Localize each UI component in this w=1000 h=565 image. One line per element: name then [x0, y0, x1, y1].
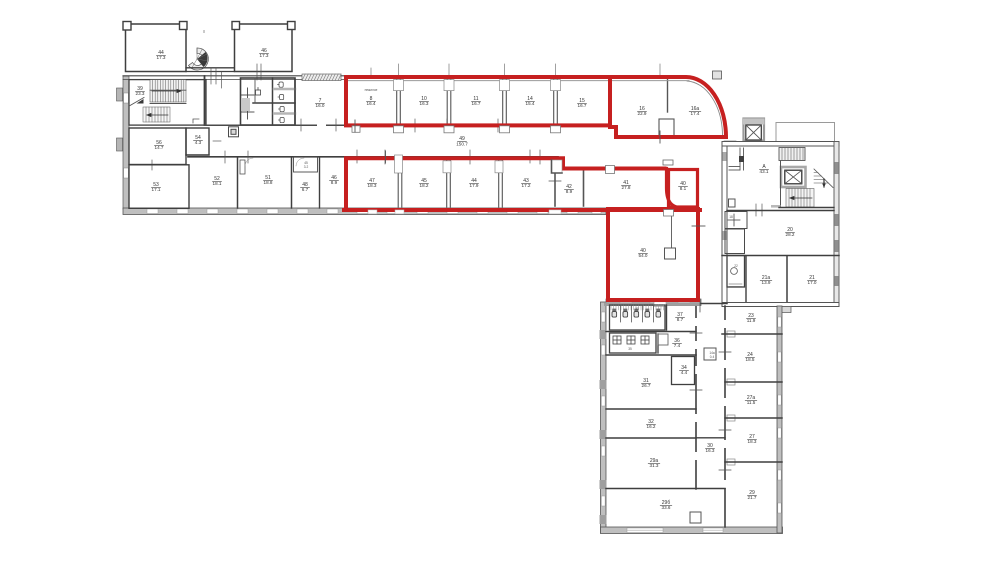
svg-text:16.2: 16.2	[647, 424, 656, 429]
svg-text:3.2: 3.2	[304, 165, 309, 169]
svg-text:17.0: 17.0	[808, 280, 817, 285]
svg-text:17.2: 17.2	[522, 183, 531, 188]
svg-text:43.1: 43.1	[760, 169, 769, 174]
svg-text:нежилое: нежилое	[365, 88, 378, 92]
svg-text:16.4: 16.4	[367, 101, 376, 106]
svg-text:17.3: 17.3	[157, 55, 166, 60]
svg-text:21.7: 21.7	[748, 495, 757, 500]
svg-text:23.3: 23.3	[136, 91, 145, 96]
svg-text:18.3: 18.3	[748, 439, 757, 444]
svg-text:8.9: 8.9	[566, 189, 573, 194]
svg-text:18.1: 18.1	[213, 181, 222, 186]
svg-text:14.7: 14.7	[155, 145, 164, 150]
svg-text:8.1: 8.1	[680, 186, 687, 191]
svg-text:18.2: 18.2	[420, 183, 429, 188]
svg-text:54.0: 54.0	[639, 253, 648, 258]
svg-text:22.9: 22.9	[638, 111, 647, 116]
svg-text:11.9: 11.9	[747, 318, 756, 323]
svg-text:16.7: 16.7	[578, 103, 587, 108]
svg-text:16.3: 16.3	[420, 101, 429, 106]
svg-text:31.3: 31.3	[650, 463, 659, 468]
svg-text:0.4: 0.4	[710, 355, 715, 359]
svg-text:4.3: 4.3	[195, 140, 202, 145]
svg-text:18: 18	[729, 215, 733, 219]
svg-text:4.4: 4.4	[681, 370, 688, 375]
svg-text:16.0: 16.0	[316, 103, 325, 108]
svg-text:11.5: 11.5	[747, 400, 756, 405]
svg-text:16.7: 16.7	[472, 101, 481, 106]
svg-text:17.3: 17.3	[260, 53, 269, 58]
svg-text:27.8: 27.8	[622, 185, 631, 190]
svg-text:7.4: 7.4	[674, 343, 681, 348]
svg-text:13.9: 13.9	[762, 280, 771, 285]
svg-text:8.7: 8.7	[677, 317, 684, 322]
svg-text:35: 35	[628, 347, 632, 351]
svg-text:18.8: 18.8	[264, 180, 273, 185]
svg-text:150.7: 150.7	[456, 142, 468, 147]
svg-text:18.3: 18.3	[368, 183, 377, 188]
svg-text:15.4: 15.4	[526, 101, 535, 106]
svg-text:28.2: 28.2	[786, 232, 795, 237]
svg-text:18.5: 18.5	[746, 357, 755, 362]
svg-text:26.7: 26.7	[642, 383, 651, 388]
svg-text:17.9: 17.9	[470, 183, 479, 188]
svg-text:33: 33	[635, 307, 639, 311]
svg-text:17.4: 17.4	[691, 111, 700, 116]
svg-text:17.1: 17.1	[152, 187, 161, 192]
svg-text:16.3: 16.3	[706, 448, 715, 453]
svg-text:8.9: 8.9	[331, 180, 338, 185]
svg-text:33.6: 33.6	[662, 505, 671, 510]
svg-text:6.7: 6.7	[302, 187, 309, 192]
